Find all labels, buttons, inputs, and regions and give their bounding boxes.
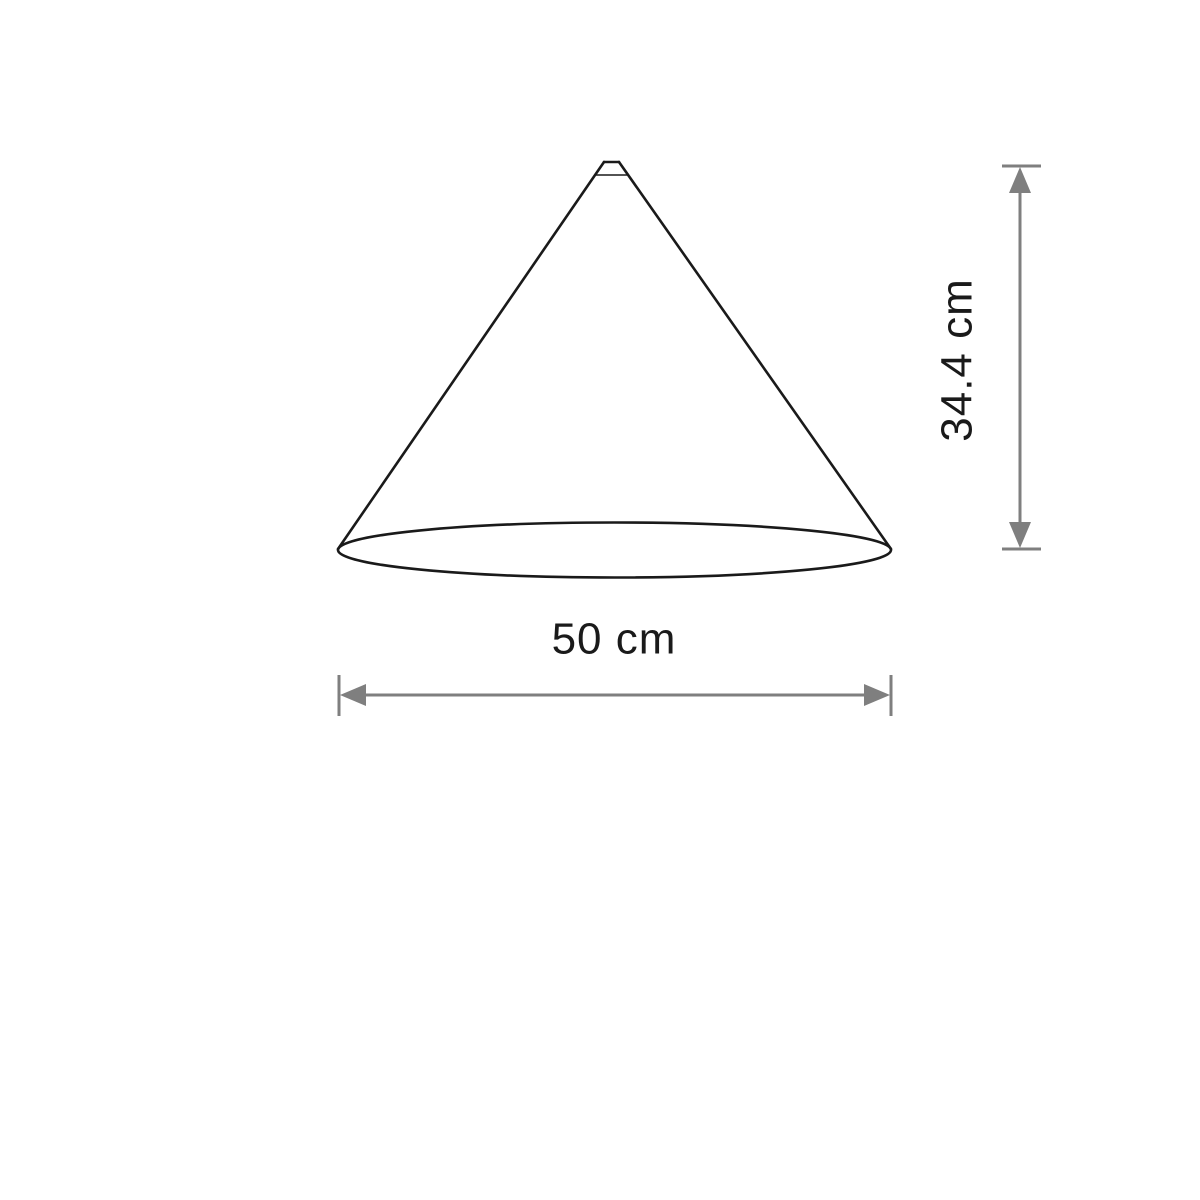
arrow-left-icon (340, 684, 366, 706)
cone-left-edge (338, 162, 604, 549)
width-dimension-lines (339, 675, 891, 716)
cone-right-edge (619, 162, 891, 549)
height-dimension-lines (1002, 166, 1041, 549)
dimension-drawing-canvas: 34.4 cm 50 cm (0, 0, 1200, 1200)
cone-outline (338, 162, 891, 578)
cone-dimension-diagram: 34.4 cm 50 cm (0, 0, 1200, 1200)
width-dimension-label: 50 cm (552, 614, 677, 663)
width-dimension-indicator: 50 cm (339, 614, 891, 716)
cone-base-ellipse (338, 523, 891, 578)
height-dimension-label: 34.4 cm (932, 278, 981, 442)
arrow-right-icon (864, 684, 890, 706)
arrow-up-icon (1009, 167, 1031, 193)
height-dimension-indicator: 34.4 cm (932, 166, 1041, 549)
arrow-down-icon (1009, 522, 1031, 548)
